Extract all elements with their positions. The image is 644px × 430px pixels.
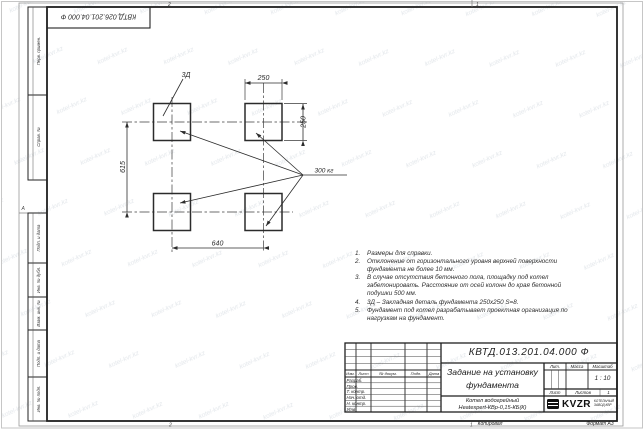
note-text: В случае отсутствия бетонного пола, площ… [367, 274, 569, 298]
kvzr-logo-text: KVZR [562, 399, 591, 410]
note-text: 3Д – Закладная деталь фундамента 250х250… [367, 299, 569, 307]
row-nkontr: Н. контр. [347, 401, 367, 406]
strip-label-podp-data-1: Подп. и дата [36, 224, 41, 252]
strip-label-perv-primen: Перв. примен. [36, 37, 41, 66]
col-list: Лист [356, 371, 371, 376]
col-doc: № докум. [371, 371, 405, 376]
strip-label-sprav: Справ. № [36, 127, 41, 147]
note-number: 5. [352, 307, 367, 323]
strip-label-inv-dubl: Инв. № дубл. [36, 267, 41, 293]
strip-label-podp-data-2: Подп. и дата [36, 339, 41, 367]
doc-title-line2: фундамента [441, 379, 544, 392]
embed-label: 3Д [182, 72, 191, 79]
note-number: 1. [352, 250, 367, 258]
scale-value: 1 : 10 [588, 375, 617, 382]
sheet-label: Лист [544, 390, 566, 395]
note-item: 1.Размеры для справки. [352, 250, 580, 258]
zone-mark-left: А [21, 206, 26, 212]
lit-header: Лит. [544, 364, 566, 369]
zone-mark-bottom-left: 2 [168, 423, 172, 429]
notes-block: 1.Размеры для справки. 2.Отклонение от г… [352, 250, 580, 323]
company-logo: KVZR КОТЕЛЬНЫЙ ЗАВОД КВР [545, 397, 616, 411]
col-date: Дата [427, 371, 441, 376]
format-label: Формат А3 [568, 421, 632, 427]
scale-header: Масштаб [588, 364, 617, 369]
col-sign: Подп. [405, 371, 427, 376]
note-text: Фундамент под котел разрабатывает проект… [367, 307, 569, 323]
col-izm: Изм. [345, 371, 356, 376]
row-prov: Пров. [347, 384, 359, 389]
note-number: 4. [352, 299, 367, 307]
row-utv: Утв. [347, 407, 357, 412]
note-item: 2.Отклонение от горизонтального уровня в… [352, 258, 580, 274]
product-name: Котел водогрейный Heatexpert-КВр-0,15-КБ… [441, 398, 544, 412]
note-item: 5.Фундамент под котел разрабатывает прое… [352, 307, 580, 323]
mass-header: Масса [566, 364, 588, 369]
sheets-label: Листов [566, 390, 600, 395]
drawing-sheet: kotel-kvr.kz kotel-kvr.kz 2 1 2 1 А [0, 0, 644, 430]
doc-title-line1: Задание на установку [441, 366, 544, 379]
doc-designation: КВТД.013.201.04.000 Ф [443, 347, 615, 358]
zone-mark-top-left: 2 [167, 2, 171, 8]
dim-615-left: 615 [120, 161, 127, 173]
sheets-value: 1 [600, 390, 617, 395]
note-text: Отклонение от горизонтального уровня вер… [367, 258, 569, 274]
note-item: 4.3Д – Закладная деталь фундамента 250х2… [352, 299, 580, 307]
load-label: 300 кг [315, 168, 335, 175]
row-nachotd: Нач. отд. [347, 395, 367, 400]
zone-mark-top-right: 1 [476, 2, 479, 8]
dim-640-bottom: 640 [212, 241, 224, 248]
doc-title: Задание на установку фундамента [441, 366, 544, 391]
copied-label: Копировал [455, 421, 525, 427]
top-designation-text: КВТД.026.201.04.000 Ф [60, 13, 136, 20]
strip-label-vzam-inv: Взам. инв. № [36, 300, 41, 327]
dim-250-right: 250 [301, 116, 308, 129]
product-name-line1: Котел водогрейный [441, 398, 544, 405]
row-tkontr: Т. контр. [347, 389, 366, 394]
note-text: Размеры для справки. [367, 250, 569, 258]
row-razrab: Разраб. [347, 378, 363, 383]
note-number: 2. [352, 258, 367, 274]
note-item: 3.В случае отсутствия бетонного пола, пл… [352, 274, 580, 298]
note-number: 3. [352, 274, 367, 298]
dim-250-top: 250 [257, 75, 270, 82]
kvzr-logo-subtext: КОТЕЛЬНЫЙ ЗАВОД КВР [594, 400, 614, 408]
kvzr-logo-icon [547, 399, 559, 409]
product-name-line2: Heatexpert-КВр-0,15-КБ(К) [441, 405, 544, 412]
kvzr-logo-subtext-line2: ЗАВОД КВР [594, 404, 614, 408]
strip-label-inv-podl: Инв. № подл. [36, 386, 41, 413]
